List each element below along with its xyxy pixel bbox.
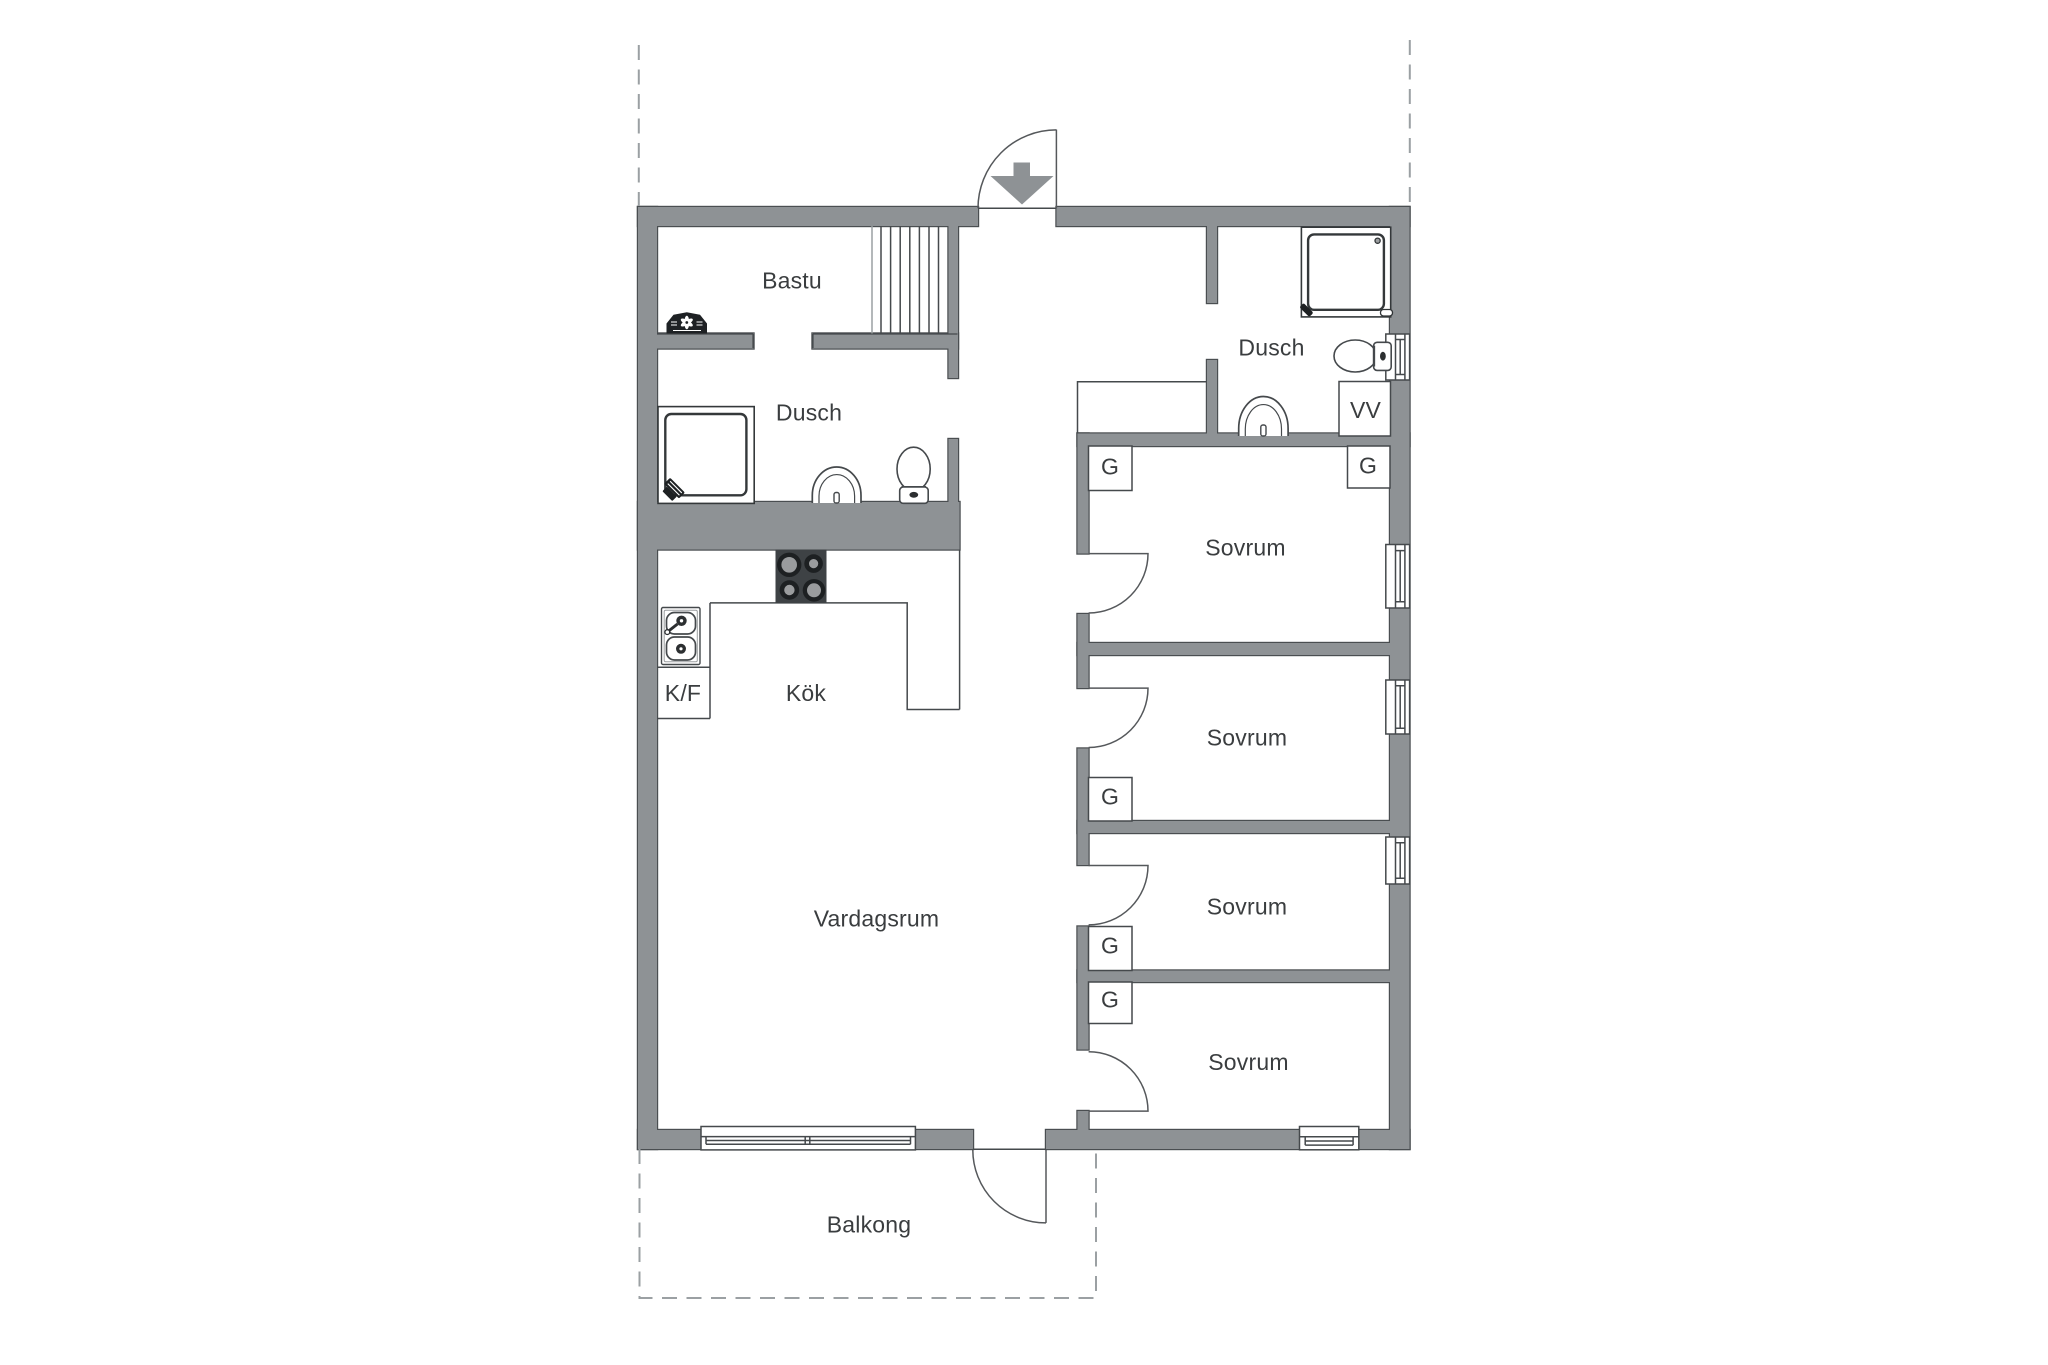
svg-text:G: G bbox=[1359, 453, 1377, 479]
svg-text:G: G bbox=[1101, 454, 1119, 480]
svg-text:Kök: Kök bbox=[786, 680, 827, 706]
svg-text:Dusch: Dusch bbox=[776, 400, 842, 426]
svg-text:Dusch: Dusch bbox=[1238, 335, 1304, 361]
svg-text:Sovrum: Sovrum bbox=[1207, 894, 1287, 920]
svg-text:Vardagsrum: Vardagsrum bbox=[814, 906, 940, 932]
svg-text:Sovrum: Sovrum bbox=[1207, 725, 1287, 751]
svg-text:G: G bbox=[1101, 933, 1119, 959]
svg-text:Sovrum: Sovrum bbox=[1208, 1049, 1288, 1075]
svg-text:Sovrum: Sovrum bbox=[1205, 534, 1285, 560]
svg-text:Balkong: Balkong bbox=[827, 1212, 912, 1238]
svg-text:K/F: K/F bbox=[665, 680, 701, 706]
svg-text:Bastu: Bastu bbox=[762, 268, 822, 294]
svg-text:G: G bbox=[1101, 784, 1119, 810]
svg-text:VV: VV bbox=[1350, 397, 1382, 423]
svg-text:G: G bbox=[1101, 987, 1119, 1013]
